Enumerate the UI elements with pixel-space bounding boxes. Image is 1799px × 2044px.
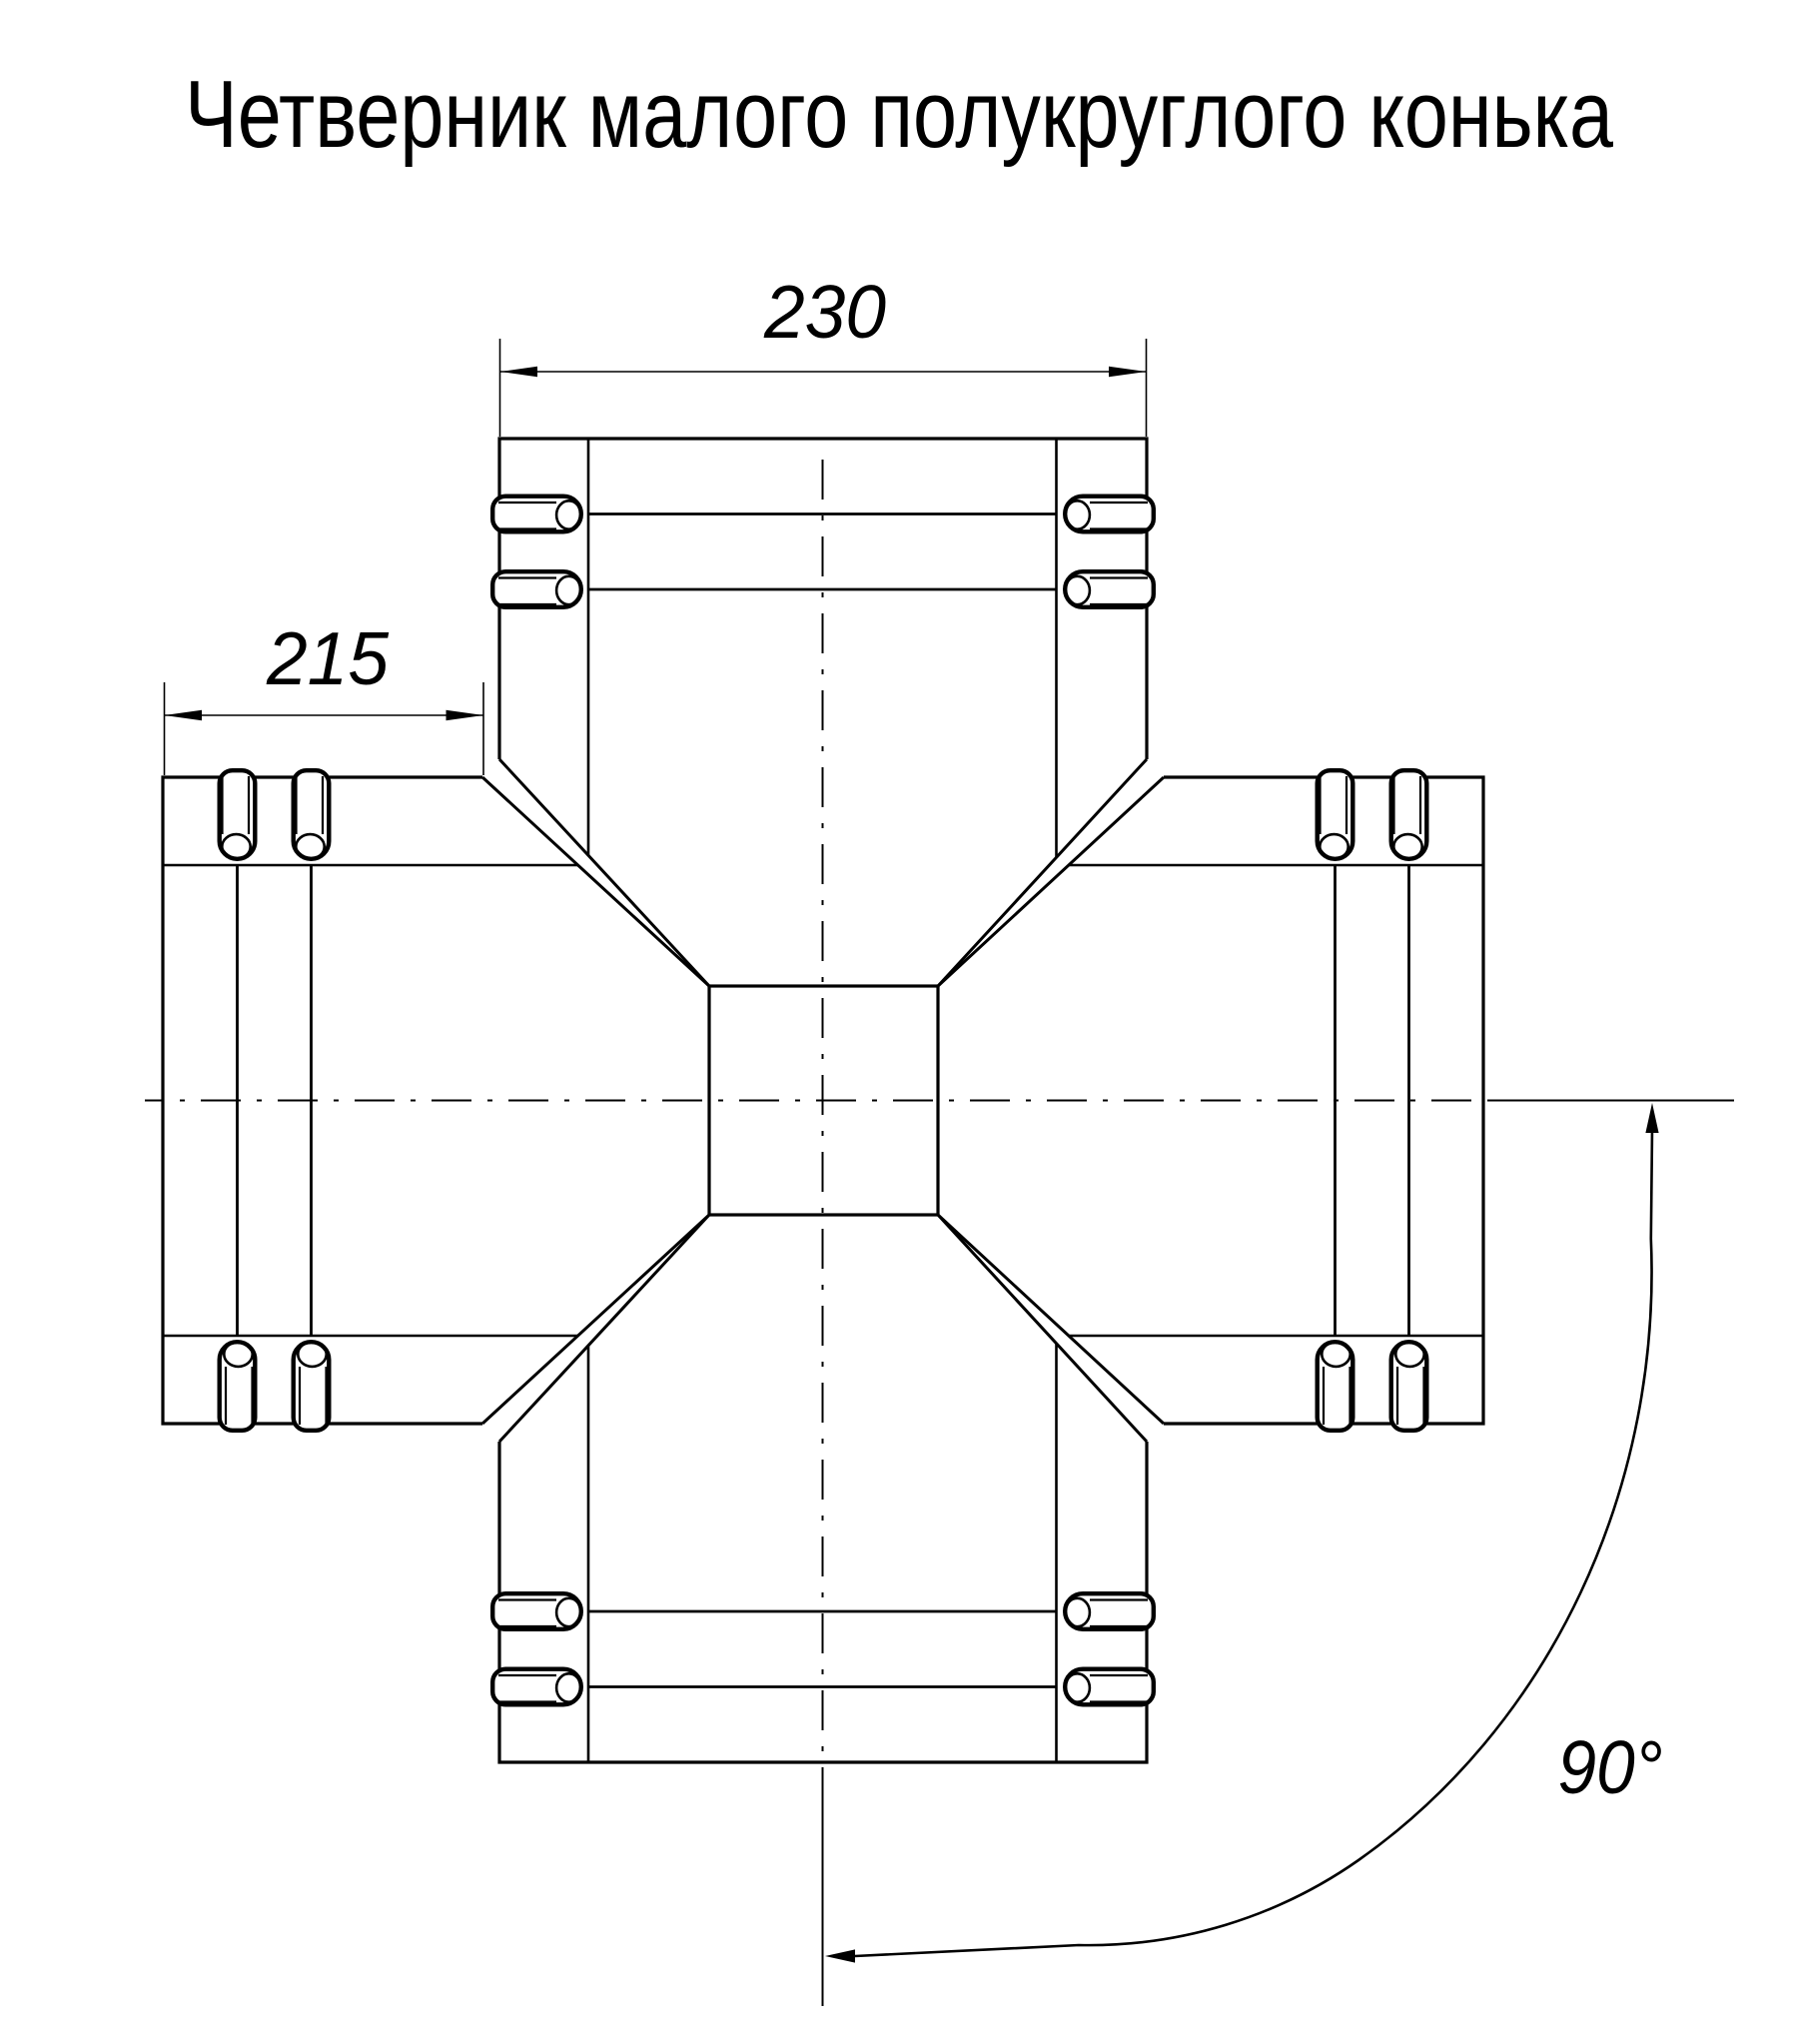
svg-text:Четверник малого полукруглого: Четверник малого полукруглого конька [185,61,1614,168]
svg-text:230: 230 [763,270,886,354]
svg-text:215: 215 [266,616,389,700]
svg-text:90°: 90° [1558,1725,1663,1809]
